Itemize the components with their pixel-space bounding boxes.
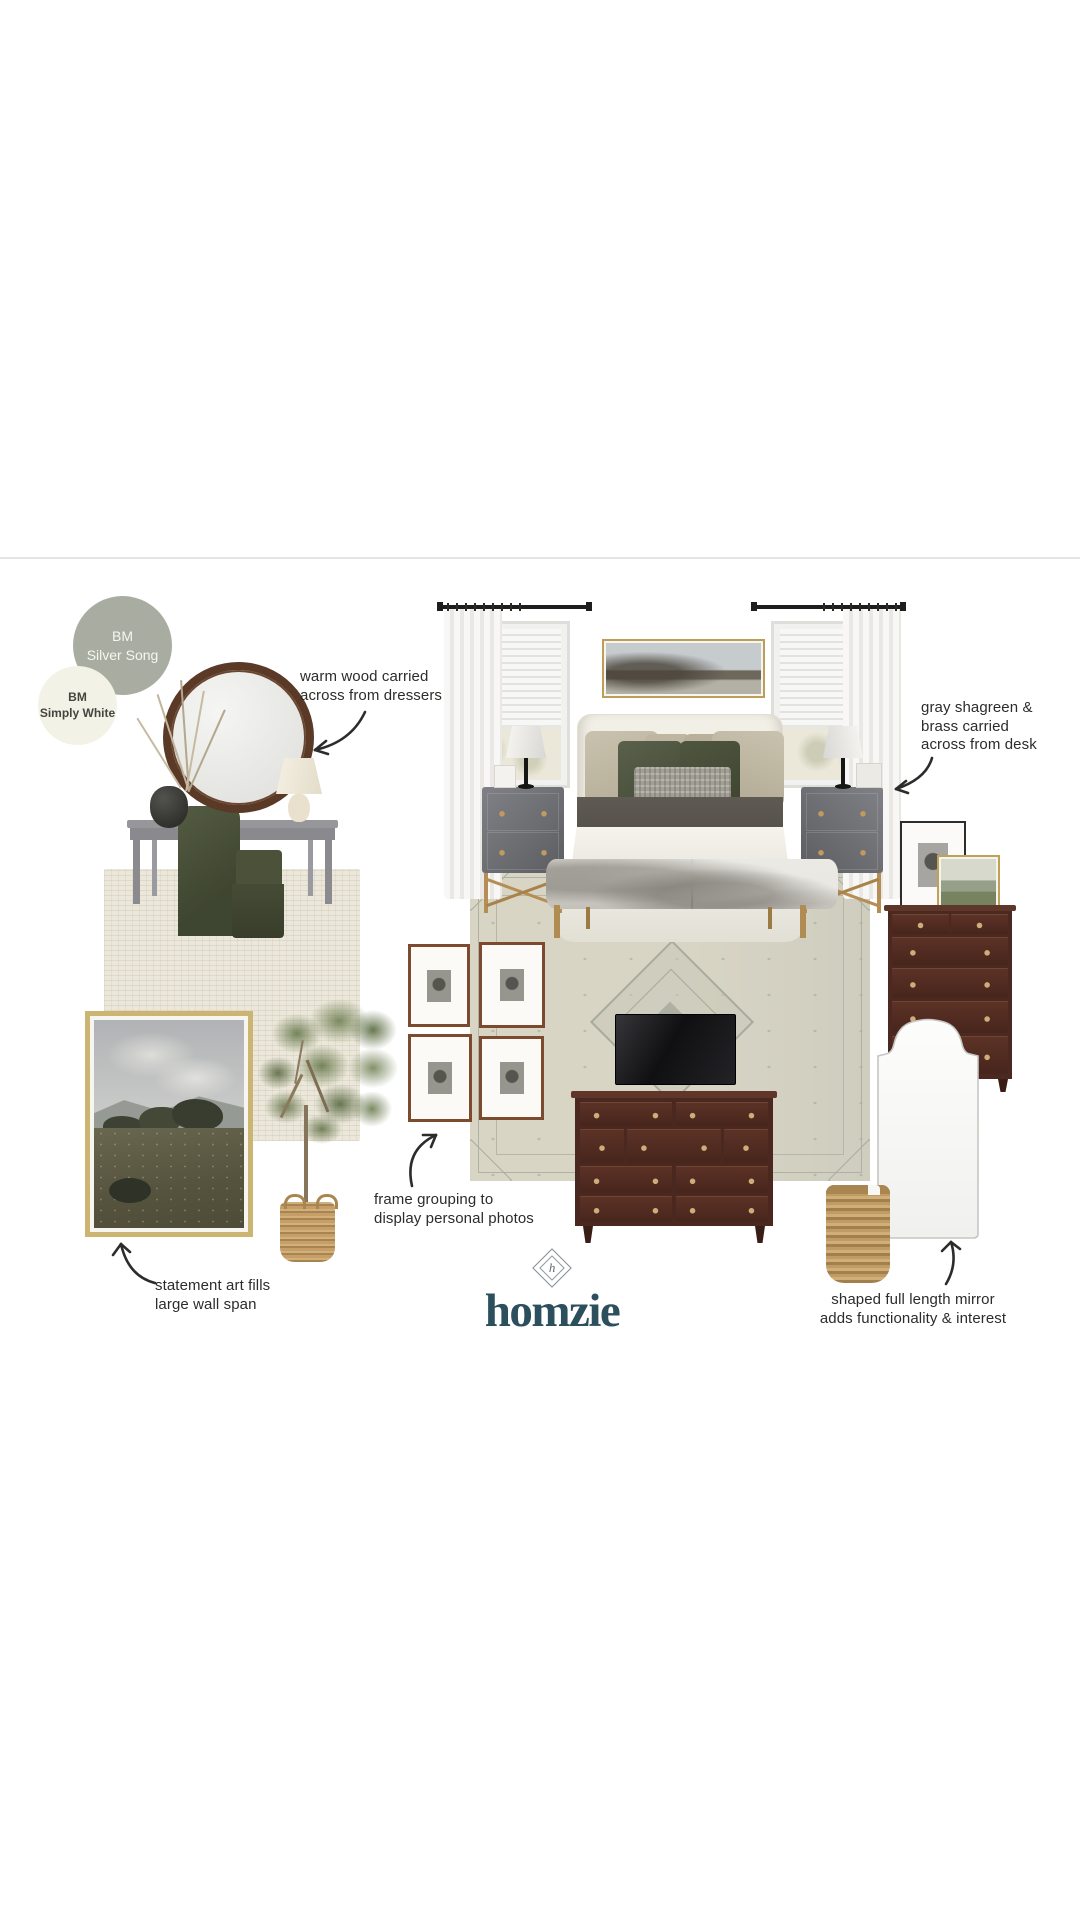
shaped-full-length-mirror [874,1016,982,1242]
gallery-frame [479,942,545,1028]
decor-box [856,763,882,788]
curtain-rings [447,603,523,611]
curved-arrow [108,1238,160,1288]
bench-leg [554,905,560,938]
annotation-shaped-mirror: shaped full length mirror adds functiona… [818,1291,1008,1328]
chair-seat [236,850,282,888]
annotation-warm-wood: warm wood carried across from dressers [300,668,460,705]
nightstand-lamp-base [835,784,851,789]
gallery-photo [500,1062,524,1094]
logo-monogram: h [549,1260,556,1276]
tree-basket-planter [280,1202,335,1262]
tall-dresser-foot [998,1079,1008,1092]
divider-line [0,557,1080,559]
paint-swatch-label: BM Silver Song [87,627,159,663]
woven-basket [826,1185,890,1283]
annotation-statement-art: statement art fills large wall span [155,1277,285,1314]
curved-arrow [930,1236,966,1288]
gallery-frame [408,944,470,1027]
nightstand-lamp-shade [506,726,546,758]
paint-swatch-simply-white: BM Simply White [38,666,117,745]
decor-box [494,765,516,788]
logo-diamond-icon: h [532,1248,572,1288]
nightstand-lamp-base [518,784,534,789]
statement-art-painting [94,1020,244,1228]
nightstand-lamp-shade [823,726,863,758]
chair-back [178,806,240,936]
tree-trunk [304,1105,308,1205]
media-dresser [575,1098,773,1226]
media-dresser-foot [755,1226,765,1243]
paint-swatch-label: BM Simply White [40,690,115,721]
table-lamp-base [288,794,310,822]
statement-art [85,1011,253,1237]
curtain-rings [823,603,899,611]
annotation-shagreen: gray shagreen & brass carried across fro… [921,699,1071,755]
gallery-frame [408,1034,472,1122]
gallery-photo [427,970,451,1002]
bench-leg [800,905,806,938]
art-frame-gold [937,855,1000,909]
gallery-frame [479,1036,544,1120]
vase [150,786,188,828]
bench-leg [586,907,590,929]
media-dresser-foot [583,1226,593,1243]
wall-art-landscape [602,639,765,698]
bench-leg [768,907,772,929]
console-table-leg [325,840,332,904]
branches [128,672,238,797]
curved-arrow [888,753,940,797]
console-table-leg [152,840,157,896]
tv [615,1014,736,1085]
chair-skirt [232,884,284,938]
logo-wordmark: homzie [462,1284,642,1338]
console-table-leg [308,840,313,896]
console-table-leg [133,840,140,904]
moodboard: BM Silver Song BM Simply White [0,0,1080,1920]
curved-arrow [398,1128,446,1190]
annotation-frame-grouping: frame grouping to display personal photo… [374,1191,544,1228]
gallery-photo [500,969,524,1001]
gallery-photo [428,1062,452,1094]
curved-arrow [305,706,371,758]
media-dresser-top [571,1091,777,1098]
bench-cowhide [546,859,838,909]
